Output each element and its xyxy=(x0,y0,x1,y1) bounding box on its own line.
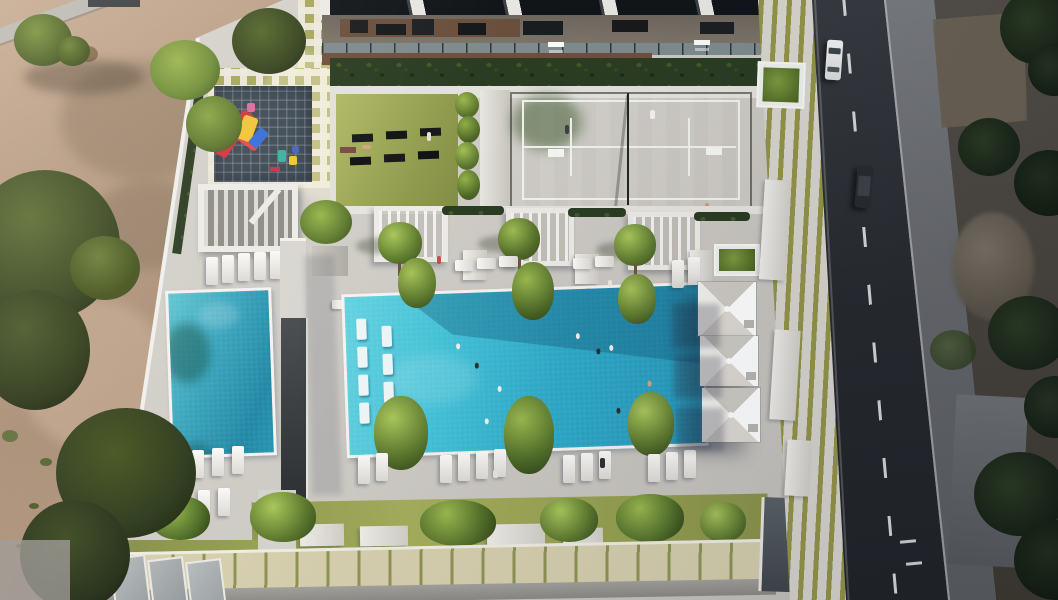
skylight-slab xyxy=(360,526,408,547)
pool-planter-bush xyxy=(504,396,554,474)
hedge-row-top xyxy=(330,58,828,88)
court-bench xyxy=(706,147,722,155)
lounger xyxy=(499,256,518,267)
terrace-furniture xyxy=(350,20,368,33)
court-service-line xyxy=(688,118,690,176)
lounger xyxy=(563,455,575,483)
person-sunbathing xyxy=(493,470,498,478)
side-table xyxy=(746,372,756,380)
lounger xyxy=(458,453,470,481)
court-lamp xyxy=(694,40,710,45)
pool-planter-bush xyxy=(512,262,554,320)
lounger xyxy=(455,260,474,271)
bush xyxy=(457,116,480,143)
shrub-cluster xyxy=(540,498,598,542)
lounger xyxy=(595,256,614,267)
swimmer xyxy=(609,345,613,351)
person xyxy=(608,280,612,287)
in-water-lounger xyxy=(357,346,368,367)
building-glass-panels xyxy=(330,0,802,15)
gym-mat xyxy=(350,157,371,166)
dark-tree xyxy=(958,118,1020,176)
person xyxy=(470,273,474,280)
lounger xyxy=(684,450,696,478)
gym-mat xyxy=(386,131,407,140)
player-white xyxy=(650,110,655,119)
shrub-cluster xyxy=(250,492,316,542)
court-lamp xyxy=(548,42,564,47)
tree-cluster xyxy=(232,8,306,74)
aerial-render-scene xyxy=(0,0,1058,600)
car-rear-window xyxy=(827,67,839,73)
lounger xyxy=(218,488,230,516)
in-water-lounger xyxy=(358,374,369,395)
car-roof xyxy=(857,176,871,197)
lounger xyxy=(648,454,660,482)
pool-planter-bush xyxy=(618,274,656,324)
pool-left-water xyxy=(168,290,274,455)
divider-wall-dark xyxy=(281,318,308,498)
cobble-patch xyxy=(0,540,70,600)
scrub-bush xyxy=(930,330,976,370)
tree xyxy=(56,36,90,66)
planter-box-white xyxy=(756,61,806,109)
bush xyxy=(457,170,480,200)
terrace-bench-slab xyxy=(769,329,800,420)
lounger xyxy=(206,257,218,285)
lounger xyxy=(581,453,593,481)
hedge-segment xyxy=(442,206,504,215)
terrace-furniture xyxy=(523,21,563,35)
divider-wall-light xyxy=(280,238,306,325)
planter-box-white xyxy=(714,244,760,276)
swimmer xyxy=(498,386,502,392)
lounger xyxy=(688,257,700,285)
lounger xyxy=(672,260,684,288)
person-red xyxy=(437,256,441,264)
hedge-segment xyxy=(568,208,626,217)
lounger xyxy=(238,253,250,281)
terrace-furniture xyxy=(612,20,648,32)
swimmer xyxy=(475,363,479,369)
court-bench xyxy=(548,149,564,157)
lounger xyxy=(573,258,592,269)
car-windshield xyxy=(828,48,840,55)
court-center-line xyxy=(522,146,736,148)
lounger xyxy=(440,455,452,483)
lounger xyxy=(222,255,234,283)
glass-skylight xyxy=(185,558,227,600)
pool-planter-bush xyxy=(398,258,436,308)
tree-cluster xyxy=(70,236,140,300)
scrub-dots xyxy=(2,430,18,442)
palm-tree xyxy=(300,200,352,244)
bush xyxy=(455,142,479,170)
court-service-line xyxy=(570,118,572,176)
shrub-cluster xyxy=(700,502,746,542)
swimmer xyxy=(616,408,620,414)
glass-skylight xyxy=(147,556,189,600)
mid-wall xyxy=(480,90,510,212)
palm-cluster xyxy=(150,40,220,100)
gym-mat xyxy=(352,134,373,143)
palm-cluster xyxy=(186,96,242,152)
in-water-lounger xyxy=(382,354,393,375)
side-table xyxy=(748,424,758,432)
gym-mat xyxy=(418,151,439,160)
side-table xyxy=(744,320,754,328)
lounger xyxy=(358,456,370,484)
swimmer xyxy=(456,343,460,349)
terrace-furniture xyxy=(700,22,734,34)
car-dark xyxy=(854,165,873,208)
lounger xyxy=(212,448,224,476)
person-exercising xyxy=(362,145,371,149)
umbrella-shadow xyxy=(676,408,724,452)
planter-greenery xyxy=(762,67,799,102)
terrace-furniture xyxy=(376,24,406,35)
lounger xyxy=(376,453,388,481)
umbrella-shadow xyxy=(672,304,720,348)
gym-mat xyxy=(384,154,405,163)
lounger xyxy=(232,446,244,474)
lounger xyxy=(666,452,678,480)
bush xyxy=(455,92,479,118)
swimmer xyxy=(576,333,580,339)
hedge-segment xyxy=(694,212,750,221)
swimmer xyxy=(596,348,600,354)
swimmer xyxy=(485,418,489,424)
in-water-lounger xyxy=(359,402,370,423)
play-structure-pink xyxy=(247,103,255,112)
person-standing xyxy=(427,132,431,141)
tree-round xyxy=(614,224,656,266)
gym-bench xyxy=(340,147,356,153)
dark-tree xyxy=(988,296,1058,370)
road-glimpse-top-left xyxy=(88,0,140,7)
shrub-cluster xyxy=(420,500,496,546)
in-water-lounger xyxy=(381,326,392,347)
car-white xyxy=(825,39,844,80)
play-item-blue xyxy=(292,146,299,153)
terrace-bench-slab xyxy=(784,439,811,496)
play-item-yellow xyxy=(289,156,297,165)
pool-planter-bush xyxy=(628,392,674,456)
terrace-furniture xyxy=(412,19,434,35)
lounger xyxy=(254,252,266,280)
player-dark xyxy=(565,125,569,134)
planter-greenery xyxy=(719,249,755,271)
umbrella-shadow xyxy=(674,356,722,398)
tree-round xyxy=(498,218,540,260)
lounger xyxy=(477,258,496,269)
in-water-lounger xyxy=(356,319,367,340)
terrace-furniture xyxy=(458,23,486,35)
person-sunbathing xyxy=(600,458,605,468)
swimmer xyxy=(647,381,651,387)
play-item-teal xyxy=(278,150,286,162)
lounger xyxy=(476,451,488,479)
shrub-cluster xyxy=(616,494,684,542)
play-item-red xyxy=(270,167,280,171)
